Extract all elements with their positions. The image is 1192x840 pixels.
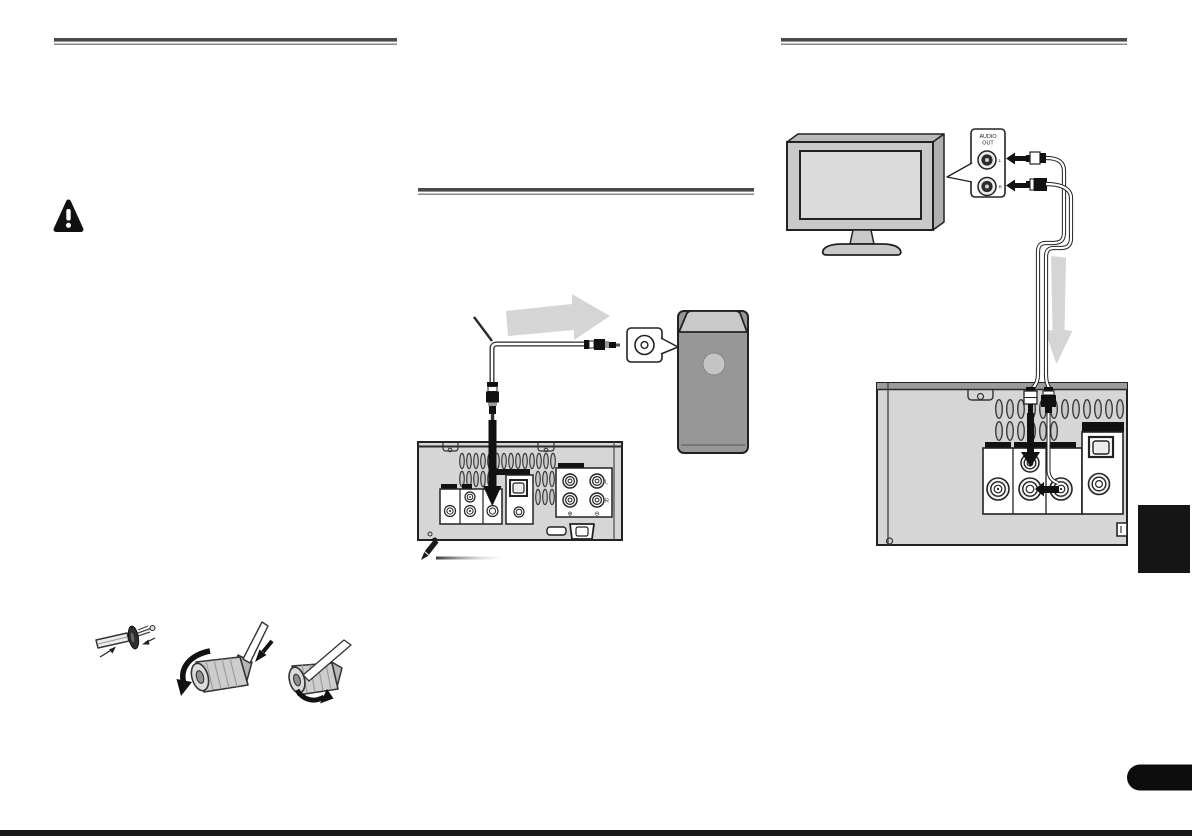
warning-icon [56, 202, 81, 230]
note-rule [436, 557, 512, 560]
tv-connection-diagram: AUDIO OUT L R [787, 129, 1127, 545]
polarity-plus: ⊕ [567, 512, 572, 518]
speaker-wire-steps [96, 622, 351, 704]
section-rule-middle [418, 188, 754, 195]
tv [787, 134, 944, 255]
jack-l-label: L [999, 158, 1002, 164]
speaker-terminal-box-small: L R ⊕ ⊖ [556, 463, 612, 518]
rca-jack [1089, 474, 1110, 495]
speaker-wire [243, 622, 268, 663]
terminal-close-step [287, 640, 351, 704]
audio-out-jack-l [978, 151, 996, 169]
video-connector-small [570, 524, 594, 539]
jack-r-label: R [999, 185, 1003, 191]
page-bottom-edge [0, 830, 1192, 836]
subwoofer-jack [487, 506, 498, 517]
ac-inlet-small [547, 527, 566, 535]
rca-plug-black-tv [1026, 178, 1047, 191]
rear-panel-small: L R ⊕ ⊖ [418, 442, 622, 540]
subwoofer-jack-callout [627, 328, 678, 362]
flow-arrow-down [1045, 256, 1073, 364]
wire-strip-step [96, 625, 155, 657]
page-edge-tab [1138, 505, 1190, 573]
note-icon [421, 538, 512, 560]
tv-stand-neck [850, 230, 874, 244]
rca-jack [465, 492, 475, 502]
subwoofer-port [703, 353, 725, 375]
manual-page-svg: L R ⊕ ⊖ [0, 0, 1192, 840]
optical-box-large [1082, 422, 1124, 514]
speaker-jack [590, 493, 604, 507]
subwoofer-connection-diagram: L R ⊕ ⊖ [418, 294, 748, 540]
terminal-open-step [177, 622, 273, 696]
rca-plug-white-tv [1026, 152, 1046, 164]
optical-connector-small [506, 475, 533, 524]
audio-out-label-1: AUDIO [979, 134, 996, 140]
audio-out-jack-r [978, 178, 996, 196]
audio-out-label-2: OUT [982, 141, 994, 147]
tv-screen [800, 151, 921, 219]
connect-arrow-left-l [1006, 153, 1028, 165]
speaker-jack [590, 474, 604, 488]
header-rule-right [781, 38, 1127, 45]
polarity-minus: ⊖ [594, 512, 599, 518]
page-number-badge [1127, 765, 1192, 791]
connect-arrow-left-r [1006, 180, 1028, 192]
speaker-jack [563, 493, 577, 507]
rca-jack [987, 478, 1009, 500]
speaker-l-label: L [605, 480, 608, 486]
manual-page: L R ⊕ ⊖ [0, 0, 1192, 840]
header-rule-left [54, 38, 397, 45]
rear-panel-large [877, 383, 1127, 545]
speaker-jack [563, 474, 577, 488]
flow-arrow-right [506, 294, 610, 340]
video-connector-large [1117, 523, 1127, 536]
subwoofer-speaker [678, 311, 748, 453]
rca-jack [465, 506, 476, 517]
audio-out-callout: AUDIO OUT L R [947, 129, 1005, 197]
rca-plug-horizontal [584, 339, 620, 350]
tv-stand-base [823, 244, 901, 255]
speaker-r-label: R [605, 499, 609, 505]
rca-plug-vertical [486, 382, 499, 420]
rca-jack [445, 506, 456, 517]
